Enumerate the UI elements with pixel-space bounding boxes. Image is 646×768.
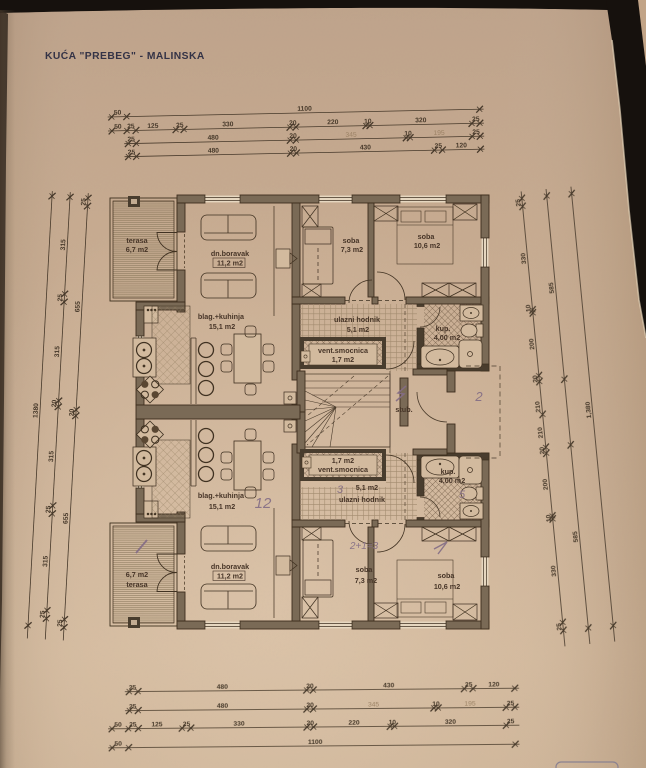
- svg-text:50: 50: [114, 740, 122, 747]
- svg-text:20: 20: [306, 720, 314, 727]
- svg-text:430: 430: [360, 144, 372, 151]
- svg-text:2: 2: [474, 389, 483, 404]
- svg-text:345: 345: [345, 132, 357, 139]
- svg-text:terasa: terasa: [126, 580, 148, 589]
- svg-text:220: 220: [327, 119, 339, 126]
- svg-text:soba: soba: [418, 232, 436, 241]
- svg-text:10: 10: [389, 719, 397, 726]
- svg-text:15,1 m2: 15,1 m2: [209, 322, 235, 331]
- svg-text:kup.: kup.: [441, 467, 456, 476]
- svg-text:210: 210: [537, 427, 545, 439]
- svg-text:25: 25: [127, 123, 135, 130]
- svg-text:12: 12: [255, 495, 272, 512]
- svg-text:25: 25: [176, 122, 184, 129]
- svg-text:6,7 m2: 6,7 m2: [126, 570, 148, 579]
- svg-text:25: 25: [57, 294, 64, 302]
- svg-text:330: 330: [233, 720, 244, 727]
- svg-text:7,3 m2: 7,3 m2: [355, 576, 377, 585]
- svg-text:50: 50: [114, 124, 122, 131]
- svg-text:25: 25: [435, 143, 443, 150]
- svg-text:blag.+kuhinja: blag.+kuhinja: [198, 491, 245, 500]
- svg-text:480: 480: [207, 134, 219, 141]
- svg-text:125: 125: [151, 721, 162, 728]
- svg-text:200: 200: [528, 338, 536, 350]
- svg-text:11,2 m2: 11,2 m2: [217, 572, 243, 581]
- svg-text:320: 320: [445, 719, 456, 726]
- svg-text:dn.boravak: dn.boravak: [211, 562, 249, 571]
- svg-text:20: 20: [532, 375, 540, 383]
- svg-text:soba: soba: [438, 571, 456, 580]
- svg-text:50: 50: [114, 721, 122, 728]
- svg-text:vent.smocnica: vent.smocnica: [318, 465, 369, 474]
- svg-text:20: 20: [539, 446, 547, 454]
- svg-text:585: 585: [548, 282, 556, 294]
- svg-text:KUĆA "PREBEG" - MALINSKA: KUĆA "PREBEG" - MALINSKA: [45, 49, 205, 62]
- svg-text:15,1 m2: 15,1 m2: [209, 502, 235, 511]
- svg-text:10,6 m2: 10,6 m2: [414, 241, 440, 250]
- svg-text:220: 220: [348, 719, 359, 726]
- svg-text:2+1=3: 2+1=3: [349, 541, 379, 552]
- svg-text:25: 25: [507, 718, 515, 725]
- svg-text:25: 25: [57, 619, 64, 627]
- svg-text:345: 345: [368, 701, 379, 708]
- svg-text:ulazni hodnik: ulazni hodnik: [339, 495, 385, 504]
- svg-text:125: 125: [147, 123, 159, 130]
- svg-text:330: 330: [550, 565, 558, 577]
- svg-text:dn.boravak: dn.boravak: [211, 249, 249, 258]
- svg-text:25: 25: [515, 198, 523, 206]
- svg-text:1,7 m2: 1,7 m2: [332, 355, 354, 364]
- svg-text:320: 320: [415, 117, 427, 124]
- svg-text:210: 210: [534, 401, 542, 413]
- svg-text:1100: 1100: [308, 739, 323, 746]
- svg-text:25: 25: [39, 610, 46, 618]
- svg-text:655: 655: [74, 301, 82, 313]
- svg-text:25: 25: [127, 136, 135, 143]
- svg-text:195: 195: [464, 700, 475, 707]
- svg-text:315: 315: [54, 346, 62, 358]
- svg-text:480: 480: [217, 684, 228, 691]
- svg-text:25: 25: [129, 721, 137, 728]
- svg-text:11,2 m2: 11,2 m2: [217, 259, 243, 268]
- svg-text:585: 585: [572, 531, 580, 543]
- svg-text:6,7 m2: 6,7 m2: [126, 245, 148, 254]
- svg-text:120: 120: [456, 142, 468, 149]
- svg-text:25: 25: [472, 116, 480, 123]
- svg-text:20: 20: [306, 702, 314, 709]
- svg-text:315: 315: [48, 450, 56, 462]
- svg-text:10: 10: [545, 514, 553, 522]
- svg-text:ulazni hodnik: ulazni hodnik: [334, 315, 380, 324]
- svg-text:25: 25: [128, 149, 136, 156]
- svg-text:soba: soba: [343, 236, 361, 245]
- svg-text:195: 195: [433, 130, 445, 137]
- svg-text:10,6 m2: 10,6 m2: [434, 582, 460, 591]
- svg-text:315: 315: [60, 239, 68, 251]
- svg-text:20: 20: [69, 408, 76, 416]
- svg-text:5,1 m2: 5,1 m2: [356, 483, 378, 492]
- svg-text:315: 315: [42, 555, 50, 567]
- svg-text:330: 330: [520, 252, 528, 264]
- svg-text:25: 25: [129, 684, 137, 691]
- svg-text:4,00 m2: 4,00 m2: [434, 333, 460, 342]
- svg-text:7,3 m2: 7,3 m2: [341, 245, 363, 254]
- svg-text:1380: 1380: [32, 403, 40, 419]
- svg-text:3: 3: [337, 484, 344, 496]
- svg-text:25: 25: [183, 721, 191, 728]
- svg-text:5,1 m2: 5,1 m2: [347, 325, 369, 334]
- svg-text:25: 25: [80, 198, 87, 206]
- svg-text:20: 20: [289, 120, 297, 127]
- svg-text:20: 20: [306, 683, 314, 690]
- svg-text:25: 25: [472, 129, 480, 136]
- svg-text:20: 20: [289, 133, 297, 140]
- svg-text:200: 200: [542, 478, 550, 490]
- svg-text:blag.+kuhinja: blag.+kuhinja: [198, 312, 245, 321]
- svg-text:25: 25: [556, 622, 564, 630]
- svg-text:vent.smocnica: vent.smocnica: [318, 346, 369, 355]
- svg-text:655: 655: [63, 512, 71, 524]
- svg-text:1100: 1100: [297, 106, 312, 113]
- svg-text:terasa: terasa: [126, 236, 148, 245]
- svg-text:10: 10: [432, 701, 440, 708]
- svg-text:10: 10: [525, 304, 533, 312]
- svg-text:1,7 m2: 1,7 m2: [332, 456, 354, 465]
- svg-text:120: 120: [488, 681, 499, 688]
- svg-text:20: 20: [290, 146, 298, 153]
- svg-text:4,00 m2: 4,00 m2: [439, 476, 465, 485]
- svg-text:10: 10: [404, 130, 412, 137]
- svg-text:10: 10: [364, 118, 372, 125]
- svg-text:330: 330: [222, 121, 234, 128]
- svg-text:soba: soba: [356, 565, 374, 574]
- svg-text:25: 25: [45, 505, 52, 513]
- svg-text:430: 430: [383, 682, 394, 689]
- svg-text:25: 25: [129, 703, 137, 710]
- svg-text:5: 5: [459, 489, 466, 501]
- svg-text:kup.: kup.: [436, 324, 451, 333]
- svg-text:480: 480: [208, 147, 220, 154]
- svg-text:480: 480: [217, 703, 228, 710]
- svg-text:25: 25: [507, 700, 515, 707]
- svg-text:25: 25: [465, 681, 473, 688]
- svg-text:20: 20: [51, 399, 58, 407]
- svg-text:50: 50: [114, 110, 122, 117]
- svg-text:stub.: stub.: [395, 405, 412, 414]
